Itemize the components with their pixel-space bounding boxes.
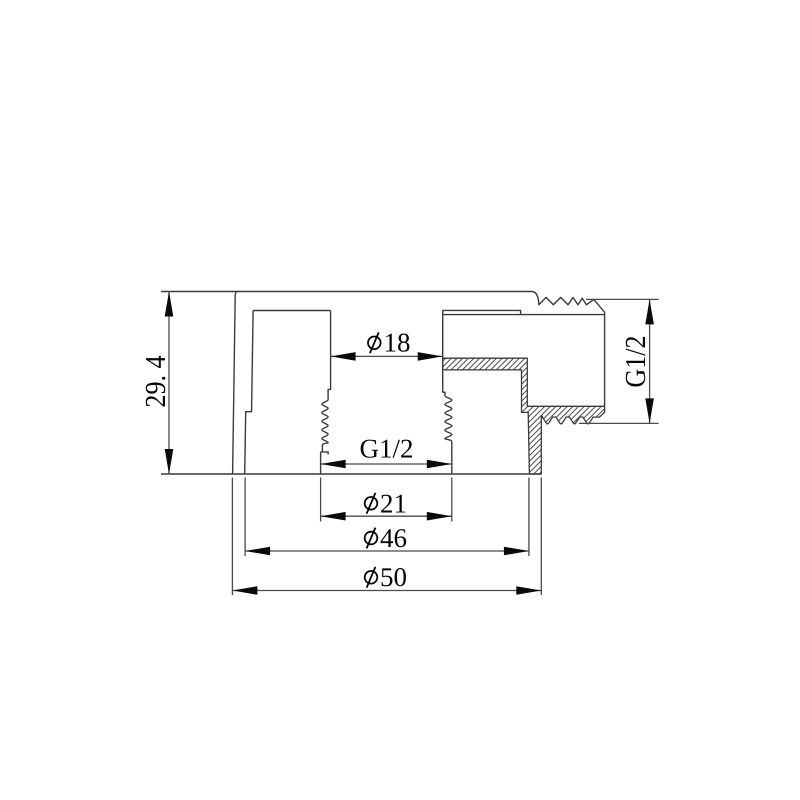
svg-text:18: 18 (384, 328, 411, 358)
svg-text:50: 50 (380, 562, 407, 592)
svg-text:21: 21 (380, 488, 407, 518)
svg-text:46: 46 (380, 523, 407, 553)
svg-text:29. 4: 29. 4 (140, 355, 172, 408)
svg-text:G1/2: G1/2 (360, 434, 414, 464)
svg-text:G1/2: G1/2 (620, 335, 652, 387)
